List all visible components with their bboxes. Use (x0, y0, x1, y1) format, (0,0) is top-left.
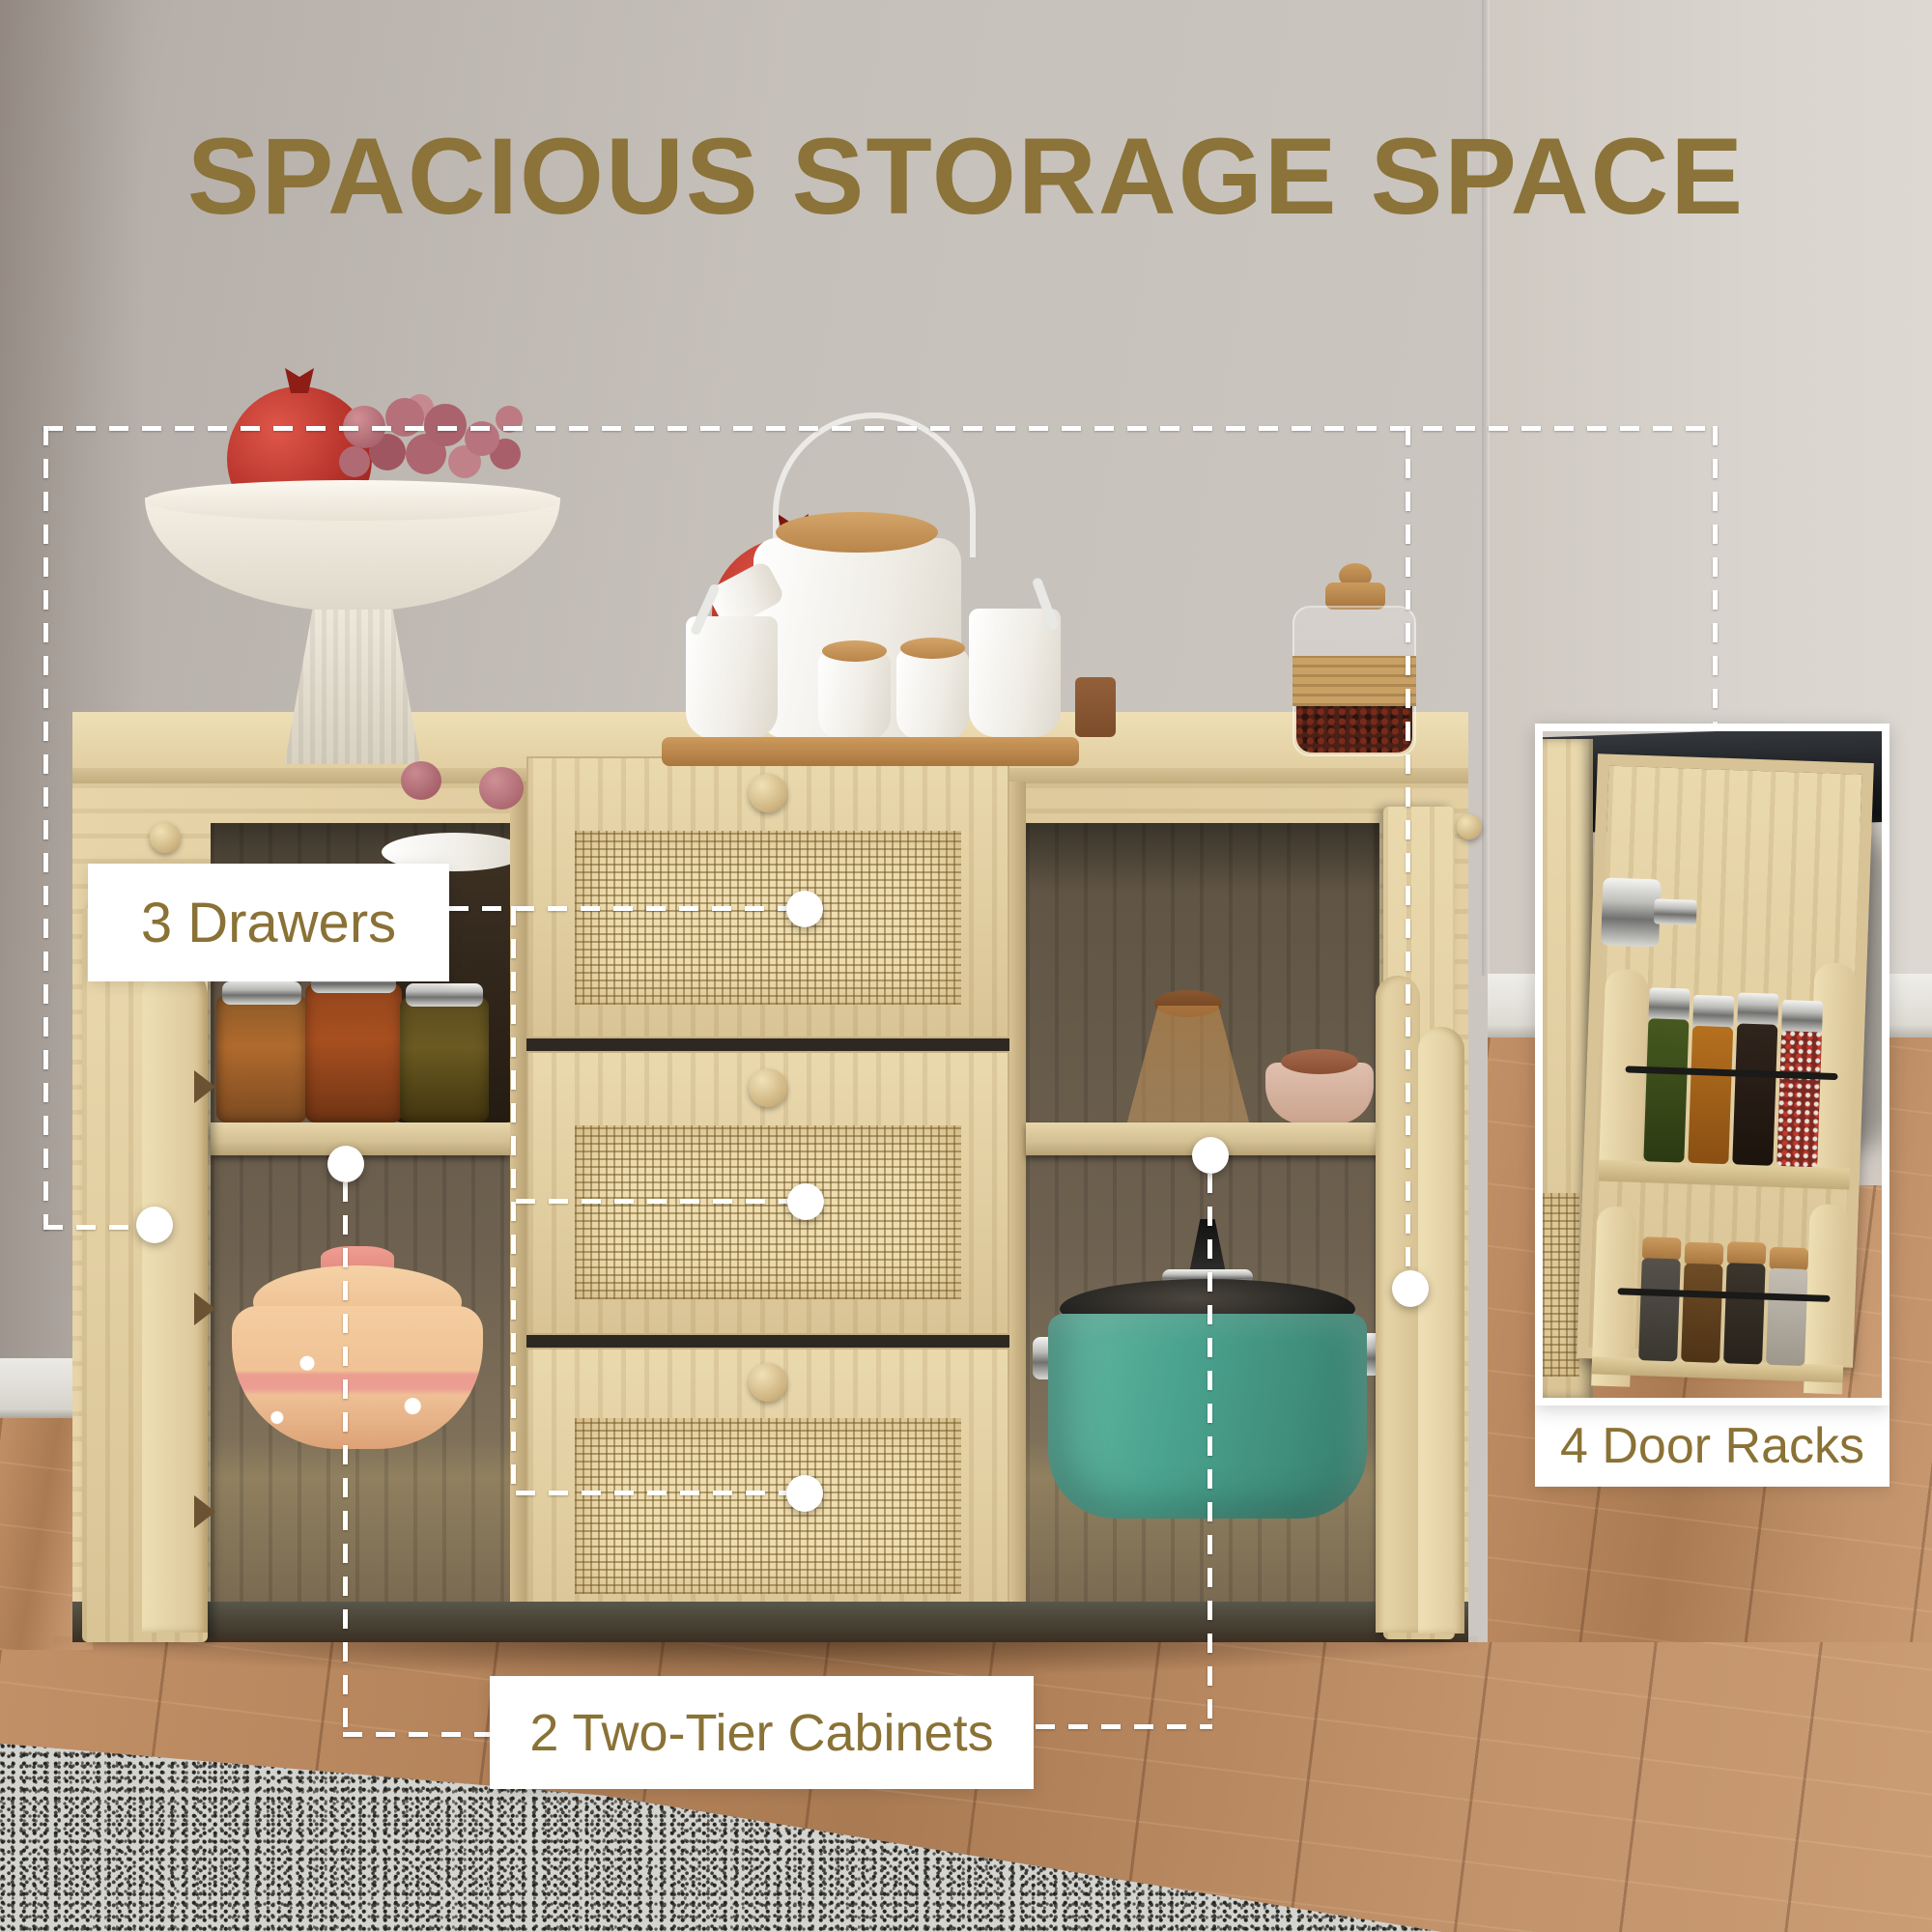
drawer-rattan-panel (575, 1125, 961, 1299)
clay-pot-body (232, 1306, 483, 1449)
drawer-top (526, 756, 1009, 1038)
marker-right-shelf (1192, 1137, 1229, 1174)
tea-mug-right (969, 609, 1061, 737)
inset-spice-jar-lid (1692, 995, 1734, 1029)
inset-cork-jar (1638, 1258, 1681, 1361)
beige-canister-lid (1281, 1049, 1358, 1074)
marker-left-door (136, 1207, 173, 1243)
callout-rect-right-line (1713, 426, 1718, 733)
glass-jar-lid (406, 983, 483, 1007)
tea-set-group (662, 411, 1116, 773)
inset-cork-jar (1766, 1268, 1807, 1366)
tea-mug-left (686, 616, 778, 739)
inset-spice-jar-herbs (1643, 1018, 1689, 1162)
spice-jar-group (1285, 563, 1425, 761)
product-marketing-image: SPACIOUS STORAGE SPACE 3 Drawers 2 Two-T… (0, 0, 1932, 1932)
callout-drawers-line (449, 906, 789, 911)
marker-top-drawer (786, 891, 823, 927)
inset-spice-jar-lid (1781, 1000, 1823, 1034)
dripper-glass-cone (1125, 1006, 1251, 1129)
drawer-gap (526, 1335, 1009, 1348)
drawers-label: 3 Drawers (88, 864, 449, 981)
callout-bottom-drawer-line (516, 1491, 789, 1495)
left-compartment-shelf (211, 1122, 510, 1155)
glass-jar-lid (222, 981, 301, 1005)
left-door-open (82, 908, 213, 1642)
inset-open-door (1577, 753, 1874, 1368)
right-door-knob (1457, 814, 1482, 839)
door-racks-label-text: 4 Door Racks (1560, 1417, 1864, 1475)
drawer-knob (749, 1363, 787, 1402)
cabinet-floor-shadow (53, 1636, 1478, 1675)
inset-spice-jar-lid (1737, 992, 1778, 1026)
tea-canister-lid (900, 638, 965, 659)
cabinet-divider-right (1009, 781, 1026, 1642)
callout-right-door-line (1406, 426, 1410, 1270)
cutting-board (1075, 677, 1116, 737)
marker-bottom-drawer (786, 1475, 823, 1512)
drawer-rattan-panel (575, 831, 961, 1005)
marker-left-shelf (327, 1146, 364, 1182)
clay-pot (232, 1246, 483, 1449)
drawers-label-text: 3 Drawers (141, 891, 396, 955)
right-door-rack-rail (1418, 1027, 1464, 1634)
inset-rack-rail-left (1599, 969, 1649, 1180)
callout-left-shelf-foot-line (343, 1732, 490, 1737)
door-racks-label: 4 Door Racks (1535, 1406, 1889, 1487)
drawer-rattan-panel (575, 1418, 961, 1594)
page-title: SPACIOUS STORAGE SPACE (0, 114, 1932, 239)
callout-right-shelf-foot-line (1036, 1724, 1212, 1729)
marker-middle-drawer (787, 1183, 824, 1220)
tea-canister (818, 652, 891, 741)
right-door-open (1379, 807, 1472, 1639)
spice-jar-cork-label (1293, 656, 1416, 706)
tea-canister (896, 649, 969, 741)
cabinet-bottom-shadow (72, 1602, 1468, 1642)
two-tier-cabinets-label-text: 2 Two-Tier Cabinets (529, 1703, 993, 1763)
drawer-middle (526, 1051, 1009, 1335)
inset-spice-jar-pepper-mix (1776, 1031, 1822, 1167)
callout-rect-top-line (43, 426, 1718, 431)
inset-door-hinge (1601, 877, 1661, 947)
inset-spice-jar-lid (1648, 987, 1690, 1021)
inset-spice-jar-powder (1688, 1026, 1733, 1164)
marker-right-door (1392, 1270, 1429, 1307)
inset-cork-jar (1723, 1263, 1766, 1364)
loose-grape (401, 761, 441, 800)
callout-right-shelf-line (1207, 1174, 1212, 1727)
glass-dripper (1125, 990, 1251, 1125)
callout-middle-drawer-line (516, 1199, 790, 1204)
spice-jar-contents (1296, 698, 1412, 753)
callout-rect-left-line (43, 426, 48, 1230)
glass-jar-pickles (400, 997, 489, 1122)
inset-door-hinge-arm (1654, 898, 1697, 925)
tea-canister-lid (822, 640, 887, 662)
glass-jar-dried-fruit (216, 995, 307, 1122)
teapot-bamboo-lid (776, 512, 938, 553)
callout-left-shelf-line (343, 1182, 348, 1735)
door-rack-inset-photo (1535, 724, 1889, 1406)
loose-grape (479, 767, 524, 810)
fruit-bowl-pedestal (275, 610, 430, 764)
fruit-bowl-group (135, 372, 580, 778)
inset-cork-jar (1681, 1264, 1723, 1363)
inset-spice-jar-peppercorn (1732, 1023, 1777, 1165)
drawer-gap (526, 1038, 1009, 1051)
drawer-knob (749, 1068, 787, 1107)
inset-rattan-door-front (1543, 1193, 1579, 1377)
bamboo-tray (662, 737, 1079, 766)
glass-jar-cookies (305, 983, 402, 1122)
fruit-bowl-rim (145, 480, 560, 521)
left-door-knob (150, 822, 181, 853)
drawer-knob (749, 774, 787, 812)
two-tier-cabinets-label: 2 Two-Tier Cabinets (490, 1676, 1034, 1789)
callout-left-door-line (43, 1225, 136, 1230)
